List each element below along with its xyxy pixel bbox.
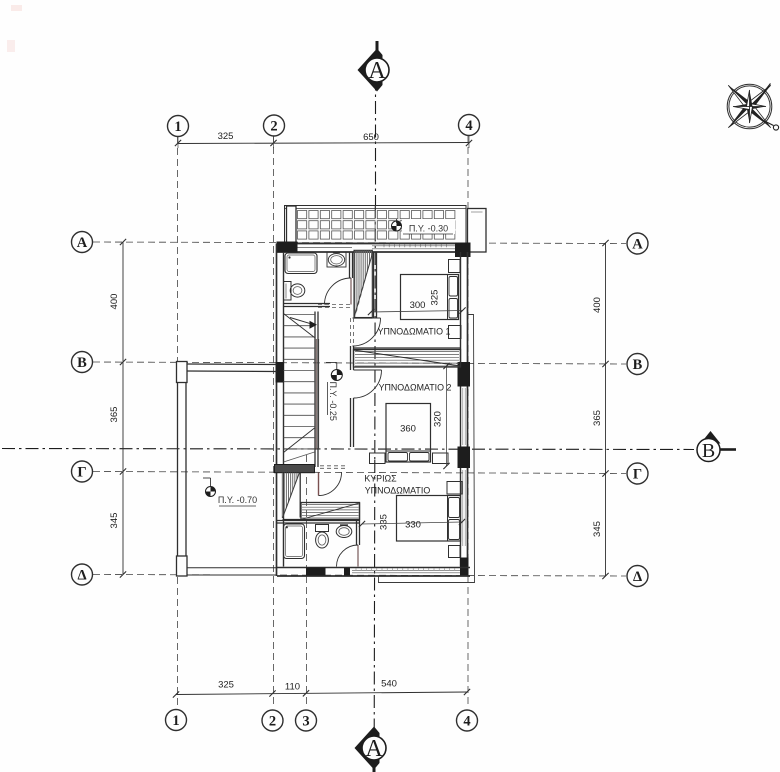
svg-text:360: 360 (400, 424, 416, 435)
svg-text:345: 345 (592, 521, 603, 537)
svg-text:Γ: Γ (77, 465, 86, 481)
svg-text:540: 540 (381, 679, 397, 690)
svg-text:325: 325 (218, 680, 234, 691)
svg-text:B: B (633, 357, 643, 373)
svg-text:Π.Υ. -0.30: Π.Υ. -0.30 (409, 224, 448, 234)
svg-text:4: 4 (465, 118, 472, 134)
svg-text:365: 365 (592, 410, 603, 426)
svg-text:320: 320 (433, 411, 444, 427)
svg-text:Δ: Δ (633, 569, 642, 585)
svg-text:A: A (77, 235, 88, 251)
svg-text:325: 325 (430, 290, 441, 306)
svg-text:ΥΠΝΟΔΩΜΑΤΙΟ: ΥΠΝΟΔΩΜΑΤΙΟ (365, 486, 431, 496)
svg-text:A: A (632, 237, 643, 253)
svg-text:ΚΥΡΙΩΣ: ΚΥΡΙΩΣ (364, 474, 397, 484)
svg-text:Δ: Δ (77, 568, 86, 584)
svg-text:A: A (368, 58, 386, 84)
svg-text:B: B (77, 355, 87, 371)
svg-text:A: A (365, 736, 383, 762)
svg-text:365: 365 (109, 407, 120, 423)
svg-text:650: 650 (363, 132, 379, 143)
svg-text:4: 4 (463, 714, 470, 730)
svg-text:2: 2 (269, 714, 276, 730)
svg-text:ΥΠΝΟΔΩΜΑΤΙΟ 1: ΥΠΝΟΔΩΜΑΤΙΟ 1 (378, 327, 451, 337)
svg-text:400: 400 (592, 297, 603, 313)
svg-text:335: 335 (379, 514, 390, 530)
svg-text:330: 330 (405, 520, 421, 531)
svg-text:110: 110 (285, 682, 300, 693)
svg-text:345: 345 (109, 513, 120, 529)
svg-text:325: 325 (218, 131, 234, 142)
svg-text:Π.Υ. -0.70: Π.Υ. -0.70 (218, 495, 257, 505)
svg-text:2: 2 (270, 119, 277, 135)
svg-text:300: 300 (410, 300, 426, 311)
svg-text:Π.Υ. -0.25: Π.Υ. -0.25 (328, 382, 338, 421)
svg-text:B: B (702, 440, 715, 462)
svg-text:1: 1 (172, 713, 179, 729)
svg-text:Γ: Γ (633, 467, 642, 483)
svg-text:1: 1 (174, 119, 181, 135)
svg-text:400: 400 (109, 294, 120, 310)
svg-text:ΥΠΝΟΔΩΜΑΤΙΟ 2: ΥΠΝΟΔΩΜΑΤΙΟ 2 (379, 383, 452, 393)
svg-text:3: 3 (302, 714, 309, 730)
